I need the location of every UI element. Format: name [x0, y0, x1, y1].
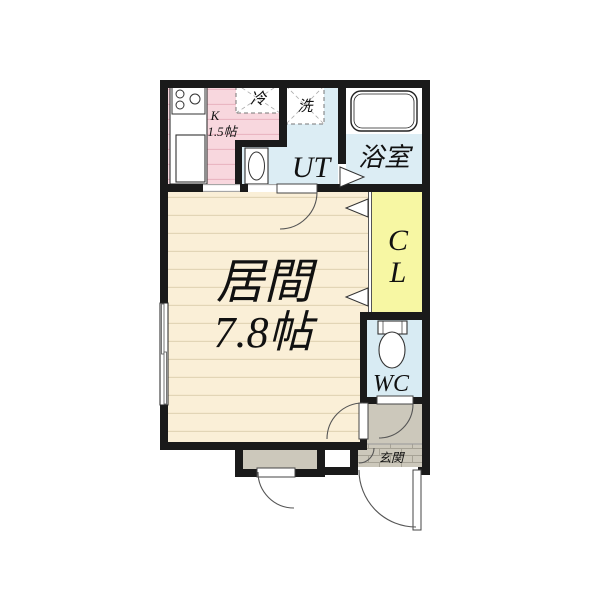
label-entrance: 玄関 — [378, 451, 405, 465]
door-leaf-hall — [359, 403, 368, 439]
door-leaf-entrance — [413, 470, 421, 530]
kitchen-sink-icon — [176, 135, 205, 182]
window-left — [160, 303, 168, 405]
refrigerator-space: 冷 — [236, 84, 280, 113]
washer-space: 洗 — [286, 86, 324, 124]
kitchen-opening — [203, 184, 240, 192]
door-leaf-storage — [257, 468, 295, 477]
bathtub-icon — [351, 91, 417, 131]
label-wc: WC — [373, 371, 410, 397]
exterior-storage-floor — [243, 450, 317, 469]
stove-icon — [172, 86, 205, 114]
hallway-floor — [367, 404, 422, 444]
entrance-opening — [358, 467, 418, 475]
label-utility: UT — [292, 151, 333, 184]
label-living: 居間 — [216, 256, 318, 309]
niche-opening — [248, 184, 277, 192]
label-bathroom: 浴室 — [358, 143, 414, 172]
label-closet-bottom: L — [389, 256, 407, 289]
label-kitchen: K — [210, 108, 221, 123]
toilet-icon — [378, 321, 407, 368]
floor-plan: 冷 洗 — [0, 0, 600, 600]
door-leaf-wc — [377, 396, 413, 404]
washer-label: 洗 — [297, 98, 314, 115]
washbasin-icon — [245, 148, 268, 184]
label-kitchen-size: 1.5帖 — [207, 124, 238, 139]
refrigerator-label: 冷 — [250, 90, 268, 108]
door-leaf-utility — [277, 184, 317, 193]
label-closet-top: C — [388, 224, 409, 257]
label-living-size: 7.8帖 — [214, 308, 319, 357]
